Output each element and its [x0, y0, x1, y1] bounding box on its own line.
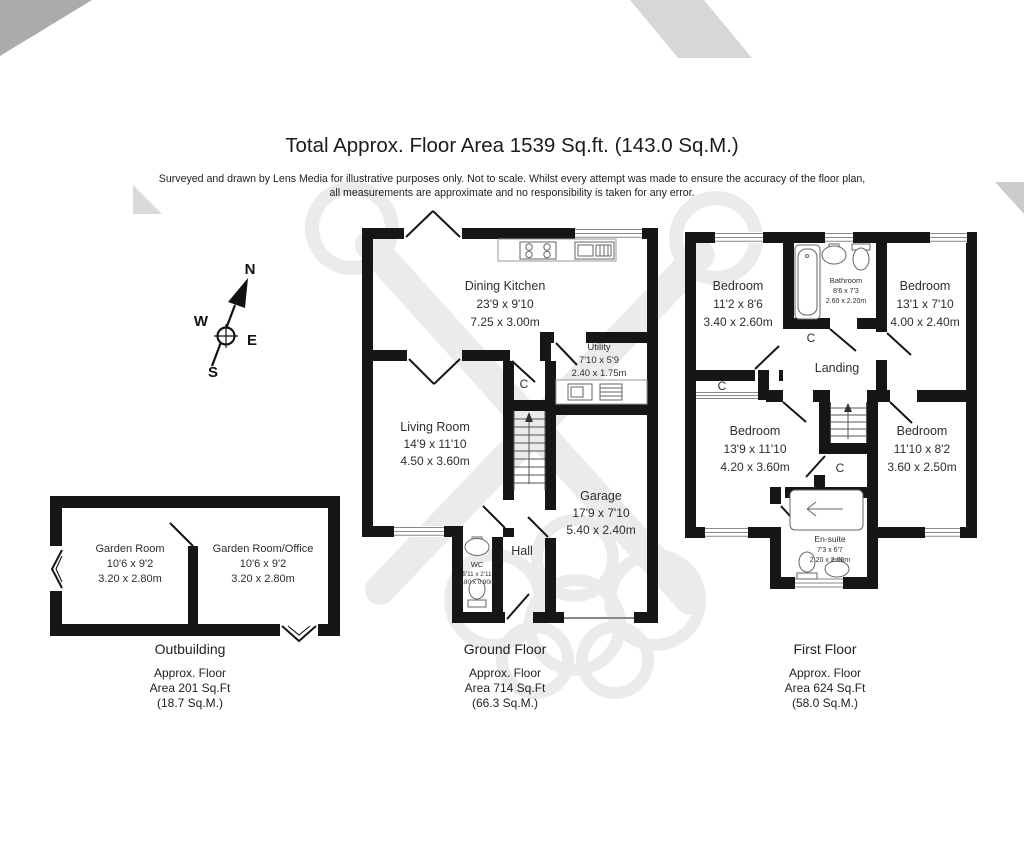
caption-line: Approx. Floor	[110, 666, 270, 681]
first-floor-stairs	[831, 402, 867, 443]
room-dims-metric: 4.20 x 3.60m	[720, 460, 789, 474]
outbuilding-caption: Outbuilding Approx. Floor Area 201 Sq.Ft…	[110, 641, 270, 711]
first-floor-plan: Bedroom 11'2 x 8'6 3.40 x 2.60m Bathroom…	[685, 232, 977, 597]
room-name: Garden Room/Office	[213, 543, 314, 555]
ground-floor-stairs	[514, 411, 545, 490]
ground-floor-plan: Dining Kitchen 23'9 x 9'10 7.25 x 3.00m …	[362, 208, 658, 628]
room-dims-metric: 3.20 x 2.80m	[231, 573, 295, 585]
compass-south-label: S	[208, 364, 218, 381]
living-room-label: Living Room 14'9 x 11'10 4.50 x 3.60m	[400, 420, 469, 468]
room-name: Utility	[587, 342, 610, 353]
cupboard-bathroom-label: C	[807, 331, 816, 345]
room-name: En-suite	[814, 534, 845, 544]
disclaimer-line-1: Surveyed and drawn by Lens Media for ill…	[0, 172, 1024, 186]
room-dims-imperial: 10'6 x 9'2	[240, 558, 286, 570]
room-name: Living Room	[400, 420, 469, 434]
bathroom-label: Bathroom 8'6 x 7'3 2.60 x 2.20m	[826, 276, 867, 305]
bath-icon	[795, 245, 820, 319]
room-dims-metric: 2.40 x 1.75m	[572, 368, 627, 379]
bedroom-bottom-left-label: Bedroom 13'9 x 11'10 4.20 x 3.60m	[720, 424, 789, 474]
room-dims-imperial: 13'1 x 7'10	[896, 297, 954, 311]
room-dims-imperial: 11'10 x 8'2	[894, 442, 951, 456]
utility-sink-icon	[568, 384, 592, 400]
room-dims-imperial: 8'6 x 7'3	[833, 288, 859, 295]
garage-label: Garage 17'9 x 7'10 5.40 x 2.40m	[566, 489, 635, 537]
compass-west-label: W	[194, 313, 209, 330]
room-dims-metric: 2.20 x 2.00m	[810, 557, 851, 564]
room-name: Bedroom	[730, 424, 781, 438]
caption-line: Approx. Floor	[745, 666, 905, 681]
bedroom-top-right-label: Bedroom 13'1 x 7'10 4.00 x 2.40m	[890, 279, 959, 329]
compass-rose: N W E S	[188, 252, 303, 384]
floorplan-page: Total Approx. Floor Area 1539 Sq.ft. (14…	[0, 0, 1024, 858]
page-title: Total Approx. Floor Area 1539 Sq.ft. (14…	[0, 134, 1024, 158]
room-name: Garden Room	[95, 543, 164, 555]
room-dims-metric: 2.60 x 2.20m	[826, 298, 867, 305]
compass-east-label: E	[247, 332, 257, 349]
compass-north-label: N	[245, 261, 256, 278]
room-dims-imperial: 5'11 x 2'11	[462, 571, 492, 578]
caption-line: (66.3 Sq.M.)	[425, 696, 585, 711]
wc-basin-icon	[465, 539, 489, 556]
disclaimer-line-2: all measurements are approximate and no …	[0, 186, 1024, 200]
first-floor-caption: First Floor Approx. Floor Area 624 Sq.Ft…	[745, 641, 905, 711]
room-name: Bedroom	[713, 279, 764, 293]
disclaimer-text: Surveyed and drawn by Lens Media for ill…	[0, 172, 1024, 200]
room-name: Bedroom	[900, 279, 951, 293]
room-dims-metric: 3.20 x 2.80m	[98, 573, 162, 585]
room-dims-imperial: 11'2 x 8'6	[713, 297, 763, 311]
stairs-up-arrow	[525, 412, 533, 422]
dining-kitchen-label: Dining Kitchen 23'9 x 9'10 7.25 x 3.00m	[465, 279, 546, 329]
utility-label: Utility 7'10 x 5'9 2.40 x 1.75m	[572, 342, 627, 379]
room-dims-metric: 4.50 x 3.60m	[400, 454, 469, 468]
kitchen-counter	[498, 239, 616, 261]
outbuilding-walls	[50, 496, 340, 636]
ground-floor-caption: Ground Floor Approx. Floor Area 714 Sq.F…	[425, 641, 585, 711]
garden-room-label: Garden Room 10'6 x 9'2 3.20 x 2.80m	[95, 543, 164, 585]
room-dims-metric: 1.80 x 0.90m	[459, 579, 495, 586]
wc-label: WC 5'11 x 2'11 1.80 x 0.90m	[459, 560, 495, 586]
caption-line: (18.7 Sq.M.)	[110, 696, 270, 711]
caption-title: Ground Floor	[425, 641, 585, 657]
cupboard-middle-label: C	[836, 461, 845, 475]
caption-title: Outbuilding	[110, 641, 270, 657]
room-dims-imperial: 17'9 x 7'10	[572, 506, 630, 520]
room-dims-imperial: 14'9 x 11'10	[403, 437, 466, 451]
room-dims-metric: 5.40 x 2.40m	[566, 523, 635, 537]
cupboard-left-label: C	[718, 379, 727, 393]
room-dims-imperial: 7'3 x 6'7	[817, 547, 843, 554]
caption-line: Area 201 Sq.Ft	[110, 681, 270, 696]
room-name: Bathroom	[830, 276, 863, 285]
caption-title: First Floor	[745, 641, 905, 657]
caption-line: (58.0 Sq.M.)	[745, 696, 905, 711]
bedroom-bottom-right-label: Bedroom 11'10 x 8'2 3.60 x 2.50m	[887, 424, 956, 474]
room-dims-metric: 3.40 x 2.60m	[703, 315, 772, 329]
cupboard-label: C	[520, 377, 529, 391]
hall-label: Hall	[511, 544, 533, 558]
room-dims-metric: 7.25 x 3.00m	[470, 315, 539, 329]
room-dims-imperial: 23'9 x 9'10	[476, 297, 534, 311]
utility-counter	[556, 380, 647, 404]
room-dims-metric: 3.60 x 2.50m	[887, 460, 956, 474]
caption-line: Area 624 Sq.Ft	[745, 681, 905, 696]
room-dims-imperial: 13'9 x 11'10	[723, 442, 786, 456]
bathroom-basin-icon	[822, 246, 846, 264]
garden-room-office-label: Garden Room/Office 10'6 x 9'2 3.20 x 2.8…	[213, 543, 314, 585]
room-name: Bedroom	[897, 424, 948, 438]
landing-label: Landing	[815, 361, 860, 375]
room-dims-imperial: 7'10 x 5'9	[579, 355, 619, 366]
outbuilding-plan: Garden Room 10'6 x 9'2 3.20 x 2.80m Gard…	[50, 496, 340, 644]
bedroom-top-left-label: Bedroom 11'2 x 8'6 3.40 x 2.60m	[703, 279, 772, 329]
room-dims-metric: 4.00 x 2.40m	[890, 315, 959, 329]
room-name: Dining Kitchen	[465, 279, 546, 293]
caption-line: Approx. Floor	[425, 666, 585, 681]
room-name: WC	[471, 560, 484, 569]
room-name: Garage	[580, 489, 622, 503]
hob-icon	[520, 242, 556, 259]
ensuite-label: En-suite 7'3 x 6'7 2.20 x 2.00m	[810, 534, 851, 564]
caption-line: Area 714 Sq.Ft	[425, 681, 585, 696]
shower-icon	[790, 490, 863, 530]
room-dims-imperial: 10'6 x 9'2	[107, 558, 153, 570]
